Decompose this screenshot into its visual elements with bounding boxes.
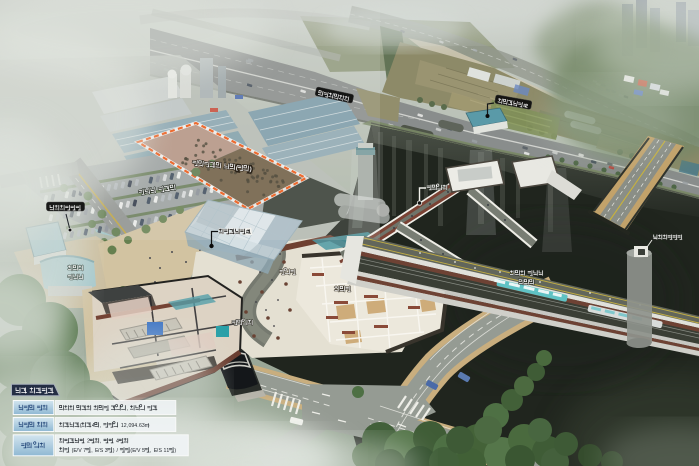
svg-text:4: 4 (92, 423, 95, 429)
svg-text:,: , (150, 448, 151, 454)
svg-text:,: , (127, 406, 128, 412)
svg-text:5: 5 (142, 448, 145, 454)
svg-text:V: V (78, 448, 82, 454)
svg-text:,: , (91, 448, 92, 454)
svg-text:,: , (100, 423, 101, 429)
svg-text:): ) (113, 448, 115, 454)
svg-text:1: 1 (248, 230, 251, 236)
svg-text:S: S (159, 448, 163, 454)
svg-text:7: 7 (83, 448, 86, 454)
svg-text:(: ( (80, 423, 82, 429)
svg-text:V: V (137, 448, 141, 454)
svg-text:4: 4 (116, 439, 119, 445)
svg-text:): ) (148, 423, 150, 429)
svg-text:1: 1 (166, 448, 169, 454)
svg-text:3: 3 (105, 448, 108, 454)
svg-text:): ) (174, 448, 176, 454)
svg-text:S: S (100, 448, 104, 454)
svg-text:2: 2 (87, 439, 90, 445)
svg-text:,: , (100, 439, 101, 445)
